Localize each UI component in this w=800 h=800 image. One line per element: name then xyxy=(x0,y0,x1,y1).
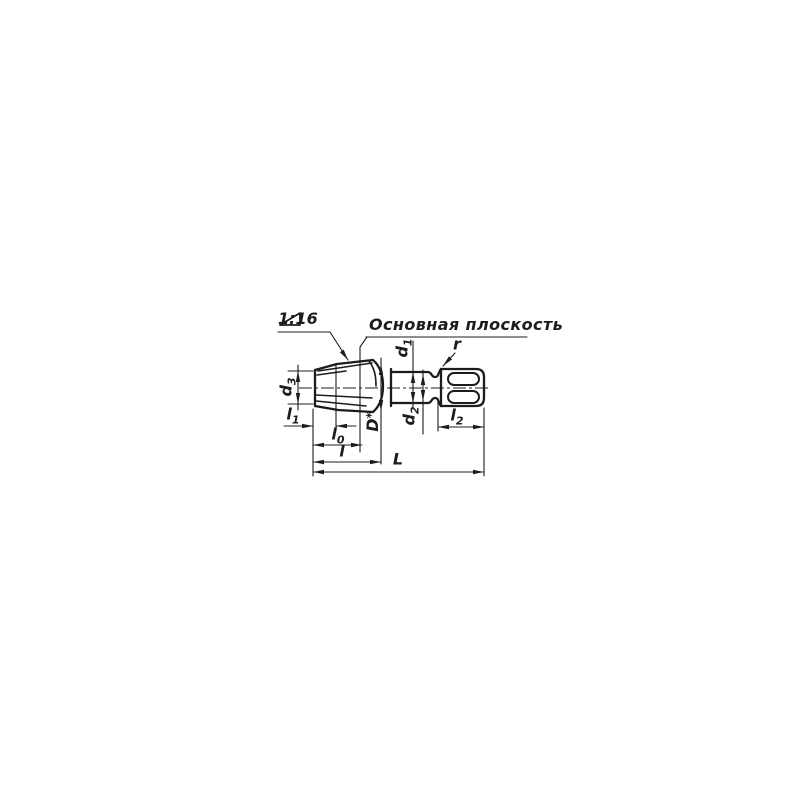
square-flat-bottom xyxy=(448,391,479,403)
taper-annotation: 1:16 xyxy=(278,311,318,327)
dim-label-d1: d1 xyxy=(395,338,414,357)
taper-triangle-icon xyxy=(278,311,303,327)
technical-drawing-linework xyxy=(0,0,800,800)
l2-arrow-right xyxy=(473,425,484,429)
l0-arrow-left xyxy=(313,443,324,447)
dim-label-l: l xyxy=(339,444,344,463)
l-arrow-left xyxy=(313,460,324,464)
L-arrow-right xyxy=(473,470,484,474)
dim-label-d2: d2 xyxy=(402,406,421,425)
d2-arrow-up xyxy=(421,374,425,385)
dim-label-r: r xyxy=(453,337,461,356)
taper-leader xyxy=(278,332,348,360)
d1-arrow-down xyxy=(411,392,415,403)
L-arrow-left xyxy=(313,470,324,474)
l2-arrow-left xyxy=(438,425,449,429)
d1-arrow-up xyxy=(411,372,415,383)
l-arrow-right xyxy=(370,460,381,464)
dim-label-L: L xyxy=(393,452,403,471)
thread-end-arc xyxy=(369,361,376,386)
drawing-canvas: 1:16 Основная плоскость d3 l1 l0 l L D* … xyxy=(0,0,800,800)
dim-label-D: D* xyxy=(365,412,381,432)
basic-plane-leader xyxy=(360,337,367,347)
l1-arrow-right xyxy=(302,424,313,428)
dim-label-l2: l2 xyxy=(450,408,463,427)
shank-bottom-edge xyxy=(391,398,441,406)
basic-plane-label: Основная плоскость xyxy=(369,317,563,333)
taper-arrow xyxy=(340,350,348,360)
d2-arrow-down xyxy=(421,390,425,401)
dim-label-d3: d3 xyxy=(279,377,298,396)
square-flat-top xyxy=(448,373,479,385)
shank-top-edge xyxy=(391,369,441,377)
dim-label-l1: l1 xyxy=(286,407,299,426)
